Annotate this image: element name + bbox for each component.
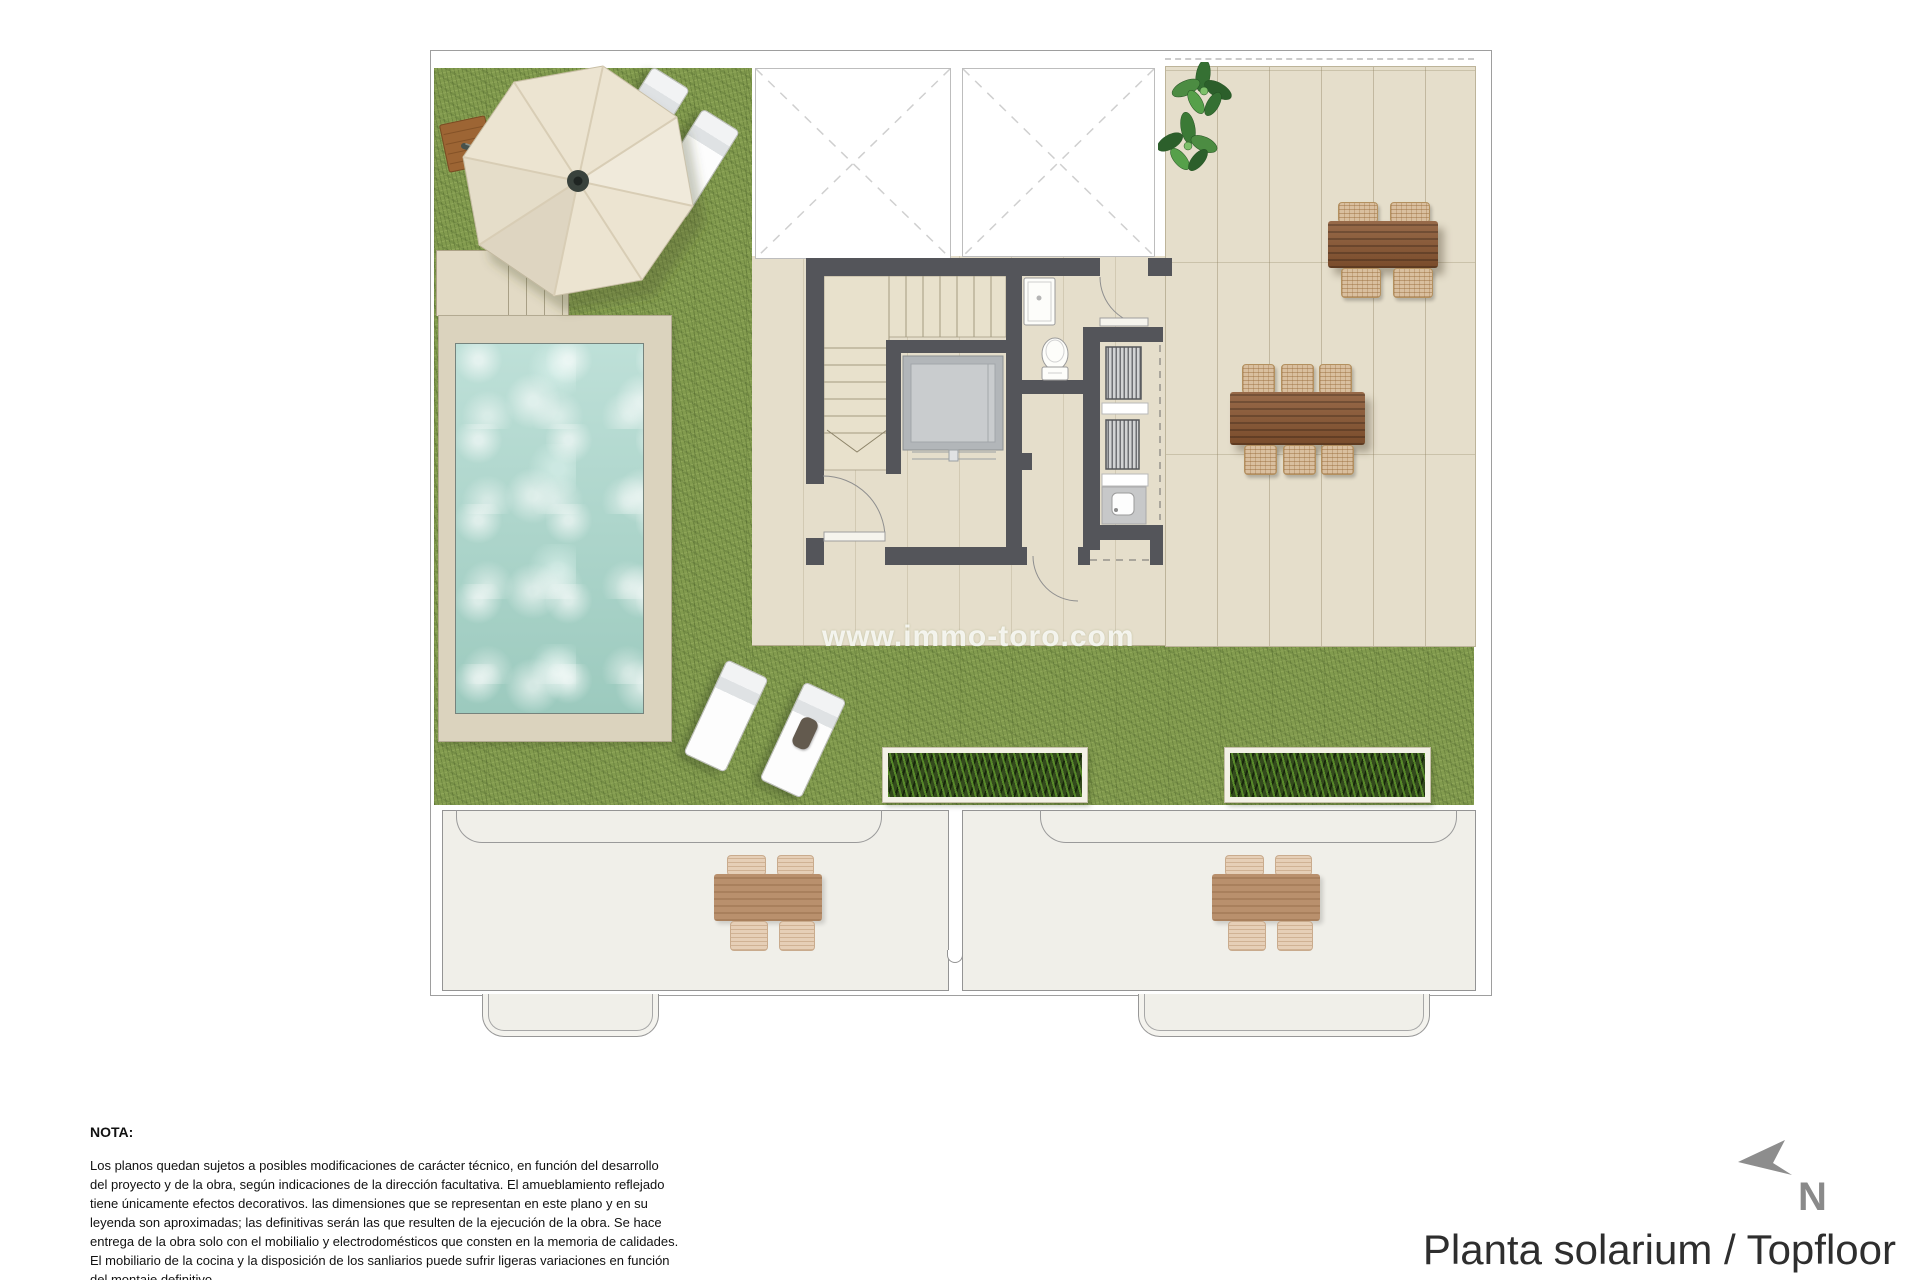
void-cross-lines — [756, 69, 950, 258]
roof-edge-dashed-line — [1165, 58, 1474, 60]
stair-core — [798, 248, 1178, 608]
lower-step-inner — [488, 994, 653, 1031]
towel-icon — [790, 715, 820, 752]
wicker-chair-icon — [1321, 445, 1354, 475]
door-leaf — [1100, 318, 1148, 326]
lower-roof-edge — [1040, 810, 1457, 843]
wicker-chair-icon — [1281, 364, 1314, 394]
ghost-chair-icon — [727, 855, 766, 876]
note-block: NOTA: Los planos quedan sujetos a posibl… — [90, 1124, 770, 1280]
stair-flight-top — [889, 276, 1006, 337]
wicker-chair-icon — [1283, 445, 1316, 475]
north-arrow-icon: N — [1728, 1130, 1858, 1230]
lower-step-outline — [482, 994, 659, 1037]
plan-title: Planta solarium / Topfloor — [1423, 1226, 1896, 1274]
north-label: N — [1798, 1175, 1827, 1219]
ghost-chair-icon — [779, 921, 815, 951]
pool-water — [455, 343, 644, 714]
north-arrow-dart — [1738, 1140, 1792, 1175]
wicker-chair-icon — [1341, 268, 1381, 298]
wicker-chair-icon — [1242, 364, 1275, 394]
note-heading: NOTA: — [90, 1124, 770, 1140]
dining-table-4-icon — [1328, 221, 1438, 268]
wicker-chair-icon — [1390, 202, 1430, 223]
wicker-chair-icon — [1338, 202, 1378, 223]
wicker-chair-icon — [1393, 268, 1433, 298]
wicker-chair-icon — [1244, 445, 1277, 475]
wicker-chair-icon — [1319, 364, 1352, 394]
parasol-icon — [438, 51, 730, 323]
shelf — [1102, 474, 1148, 486]
shelf — [1102, 403, 1148, 414]
ghost-chair-icon — [1277, 921, 1313, 951]
shower-icon — [1024, 278, 1055, 325]
roof-void-icon — [962, 68, 1155, 257]
stair-flight-left — [824, 276, 889, 470]
ghost-chair-icon — [730, 921, 768, 951]
ghost-chair-icon — [777, 855, 814, 876]
grass-planter-icon — [883, 748, 1087, 802]
void-cross-lines — [963, 69, 1154, 256]
note-body: Los planos quedan sujetos a posibles mod… — [90, 1156, 770, 1280]
louver-unit-icon — [1106, 420, 1139, 469]
potted-plant-icon — [1158, 62, 1253, 182]
floorplan-canvas: www.immo-toro.com NOTA: Los planos queda… — [0, 0, 1920, 1280]
grass-planter-icon — [1225, 748, 1430, 802]
lower-step-outline — [1138, 994, 1430, 1037]
louver-unit-icon — [1106, 347, 1141, 399]
door-leaf — [824, 532, 885, 541]
ghost-chair-icon — [1228, 921, 1266, 951]
ghost-table-icon — [714, 874, 822, 921]
dining-table-6-icon — [1230, 392, 1365, 445]
ghost-chair-icon — [1275, 855, 1312, 876]
roof-void-icon — [755, 68, 951, 259]
lower-step-inner — [1144, 994, 1424, 1031]
toilet-icon — [1042, 338, 1068, 380]
watermark: www.immo-toro.com — [822, 620, 1135, 654]
elevator-door — [949, 450, 958, 461]
lower-roof-edge — [456, 810, 882, 843]
ghost-table-icon — [1212, 874, 1320, 921]
ghost-chair-icon — [1225, 855, 1264, 876]
